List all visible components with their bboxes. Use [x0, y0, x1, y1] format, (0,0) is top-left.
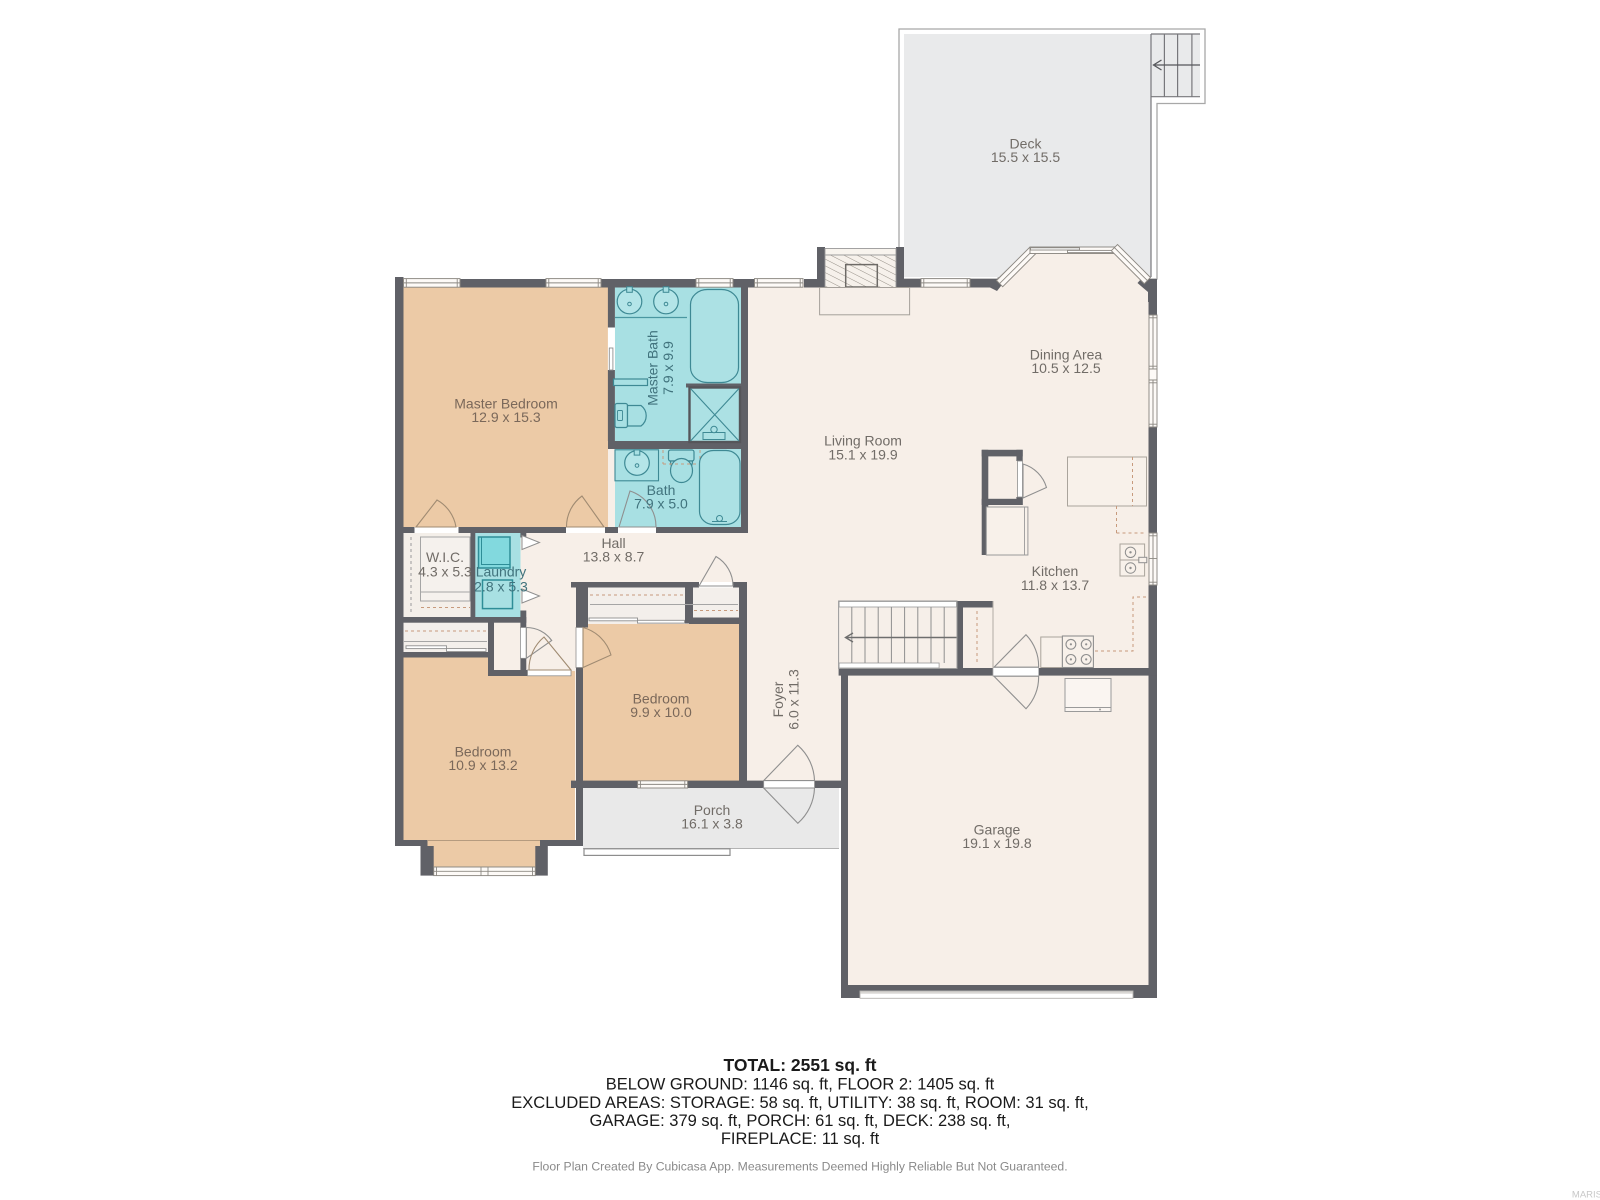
svg-text:15.1 x 19.9: 15.1 x 19.9	[828, 447, 897, 463]
svg-text:11.8 x 13.7: 11.8 x 13.7	[1021, 577, 1089, 593]
svg-text:4.3 x 5.3: 4.3 x 5.3	[418, 564, 472, 580]
svg-text:Master Bath: Master Bath	[645, 330, 661, 405]
svg-text:16.1 x 3.8: 16.1 x 3.8	[681, 816, 743, 832]
svg-text:Floor Plan Created By Cubicasa: Floor Plan Created By Cubicasa App. Meas…	[532, 1160, 1067, 1174]
svg-text:TOTAL: 2551 sq. ft: TOTAL: 2551 sq. ft	[724, 1055, 877, 1075]
svg-text:15.5 x 15.5: 15.5 x 15.5	[991, 149, 1060, 165]
svg-text:19.1 x 19.8: 19.1 x 19.8	[962, 835, 1031, 851]
svg-text:13.8 x 8.7: 13.8 x 8.7	[583, 549, 645, 565]
svg-text:BELOW GROUND: 1146 sq. ft, FLO: BELOW GROUND: 1146 sq. ft, FLOOR 2: 1405…	[606, 1076, 995, 1094]
svg-text:MARIS: MARIS	[1572, 1190, 1600, 1200]
svg-text:FIREPLACE: 11 sq. ft: FIREPLACE: 11 sq. ft	[721, 1130, 880, 1148]
svg-text:12.9 x 15.3: 12.9 x 15.3	[471, 409, 540, 425]
svg-text:Foyer: Foyer	[770, 681, 786, 717]
svg-text:10.9 x 13.2: 10.9 x 13.2	[448, 757, 517, 773]
svg-text:GARAGE: 379 sq. ft, PORCH: 61: GARAGE: 379 sq. ft, PORCH: 61 sq. ft, DE…	[590, 1112, 1011, 1130]
svg-text:EXCLUDED AREAS: STORAGE: 58 sq: EXCLUDED AREAS: STORAGE: 58 sq. ft, UTIL…	[511, 1094, 1088, 1112]
svg-text:Laundry: Laundry	[476, 564, 527, 580]
svg-text:6.0 x 11.3: 6.0 x 11.3	[786, 669, 802, 730]
svg-text:9.9 x 10.0: 9.9 x 10.0	[630, 704, 692, 720]
svg-text:10.5 x 12.5: 10.5 x 12.5	[1031, 360, 1100, 376]
svg-text:2.8 x 5.3: 2.8 x 5.3	[474, 579, 528, 595]
svg-text:7.9 x 5.0: 7.9 x 5.0	[634, 496, 688, 512]
svg-text:7.9 x 9.9: 7.9 x 9.9	[660, 341, 676, 395]
